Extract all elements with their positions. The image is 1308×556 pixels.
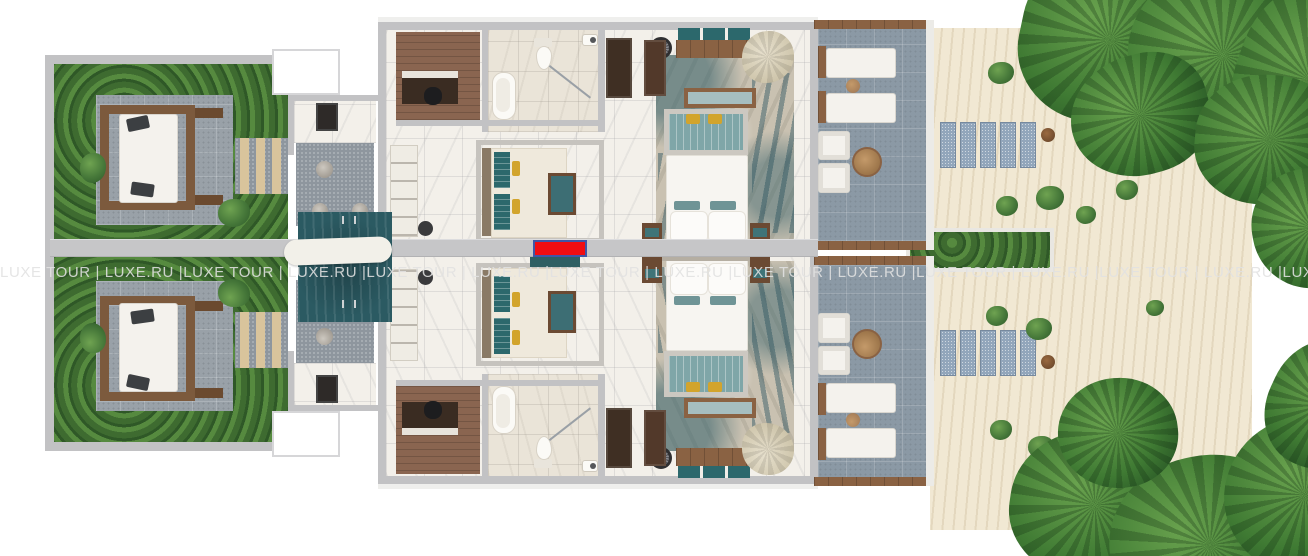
deck-armchair-1 [818, 131, 850, 160]
sun-lounger-1 [826, 428, 896, 458]
top-bench-chest [676, 40, 752, 58]
garden-wall-top [45, 442, 288, 451]
pool-ladder-bottom [342, 300, 356, 308]
deck-beam-top [814, 477, 932, 486]
entry-porch-roof [272, 411, 340, 457]
deck-round-table [852, 147, 882, 177]
lounger-slats-1 [818, 428, 826, 460]
stepping-stone-2 [256, 312, 265, 368]
nightstand-left-mat [645, 228, 659, 237]
small-bed-accent-pillow-1 [512, 161, 520, 176]
bedroom-sofa [664, 109, 748, 155]
small-bed-pillows-2 [494, 194, 510, 230]
entry-cabinet [316, 375, 338, 403]
deck-round-table [852, 329, 882, 359]
shower-head [590, 463, 596, 469]
small-bed-pillows-1 [494, 318, 510, 354]
lounger-slats-2 [818, 383, 826, 415]
corridor-wall [598, 30, 605, 132]
deck-side-table [846, 79, 860, 93]
main-bed-teal-pillow-1 [674, 296, 700, 305]
annotation-marker[interactable] [533, 240, 587, 257]
pergola-beam-1 [195, 108, 223, 118]
corridor-wall [598, 374, 605, 476]
small-bed-pillows-1 [494, 152, 510, 188]
top-bench-cushions [678, 466, 750, 478]
rug-zebra-stripes-right [752, 273, 794, 433]
top-bench-cushions [678, 28, 750, 40]
pool-ladder-top [342, 216, 356, 224]
deck-beam-bottom [814, 241, 932, 250]
tv-stand [548, 291, 576, 333]
vanity-counter [402, 71, 458, 78]
stepping-stone-1 [240, 138, 249, 194]
small-bed-accent-pillow-2 [512, 199, 520, 214]
stepping-stone-2 [256, 138, 265, 194]
rug-zebra-stripes-right [752, 73, 794, 233]
watermark-text: LUXE TOUR | LUXE.RU |LUXE TOUR | LUXE.RU… [0, 261, 1308, 285]
lounger-slats-2 [818, 91, 826, 123]
garden-wall-top [45, 55, 288, 64]
small-bed-headboard [482, 148, 491, 236]
mirror-console [684, 398, 756, 418]
main-bed-teal-pillow-2 [710, 201, 736, 210]
small-bed-accent-pillow-2 [512, 292, 520, 307]
lounger-slats-1 [818, 46, 826, 78]
pergola-beam-2 [195, 301, 223, 311]
side-desk [644, 410, 666, 466]
dressing-pouf [418, 221, 433, 236]
stepping-stone-3 [272, 138, 281, 194]
bathtub-basin [496, 394, 510, 428]
corridor-console [606, 408, 632, 468]
sun-lounger-2 [826, 383, 896, 413]
entry-cabinet [316, 103, 338, 131]
mirror-console [684, 88, 756, 108]
stepping-stone-3 [272, 312, 281, 368]
corridor-console [606, 38, 632, 98]
shared-wall-band [50, 239, 818, 257]
tv-stand [548, 173, 576, 215]
courtyard-pouf-1 [316, 161, 333, 178]
pergola-beam-1 [195, 388, 223, 398]
sofa-pillow-1 [686, 382, 700, 392]
sofa-pillow-2 [708, 382, 722, 392]
deck-armchair-2 [818, 163, 850, 193]
vanity-counter [402, 428, 458, 435]
deck-armchair-1 [818, 346, 850, 375]
nightstand-right-mat [753, 228, 767, 237]
vanity-chair [424, 87, 442, 105]
hanging-chair [742, 423, 794, 475]
deck-armchair-2 [818, 313, 850, 343]
bathtub-basin [496, 78, 510, 112]
stepping-stone-1 [240, 312, 249, 368]
pergola-beam-2 [195, 195, 223, 205]
deck-side-table [846, 413, 860, 427]
deck-sill [926, 20, 934, 250]
vanity-chair [424, 401, 442, 419]
entry-porch-roof [272, 49, 340, 95]
main-bed-teal-pillow-1 [674, 201, 700, 210]
bedroom-sofa [664, 351, 748, 397]
shower-head [590, 37, 596, 43]
small-bed-accent-pillow-1 [512, 330, 520, 345]
side-desk [644, 40, 666, 96]
sofa-pillow-1 [686, 114, 700, 124]
bath-hall-wall [396, 120, 598, 126]
wardrobe-shelving [390, 145, 418, 237]
bath-hall-wall [396, 380, 598, 386]
toilet-tank [534, 459, 552, 468]
sun-lounger-2 [826, 93, 896, 123]
deck-beam-top [814, 20, 932, 29]
deck-sill [926, 256, 934, 486]
garden-bush-1 [80, 323, 106, 353]
sofa-pillow-2 [708, 114, 722, 124]
garden-wall-left [45, 55, 54, 253]
courtyard-pouf-1 [316, 328, 333, 345]
main-bed-teal-pillow-2 [710, 296, 736, 305]
sun-lounger-1 [826, 48, 896, 78]
villa-floor-plan: LUXE TOUR | LUXE.RU |LUXE TOUR | LUXE.RU… [0, 0, 1308, 556]
top-bench-chest [676, 448, 752, 466]
